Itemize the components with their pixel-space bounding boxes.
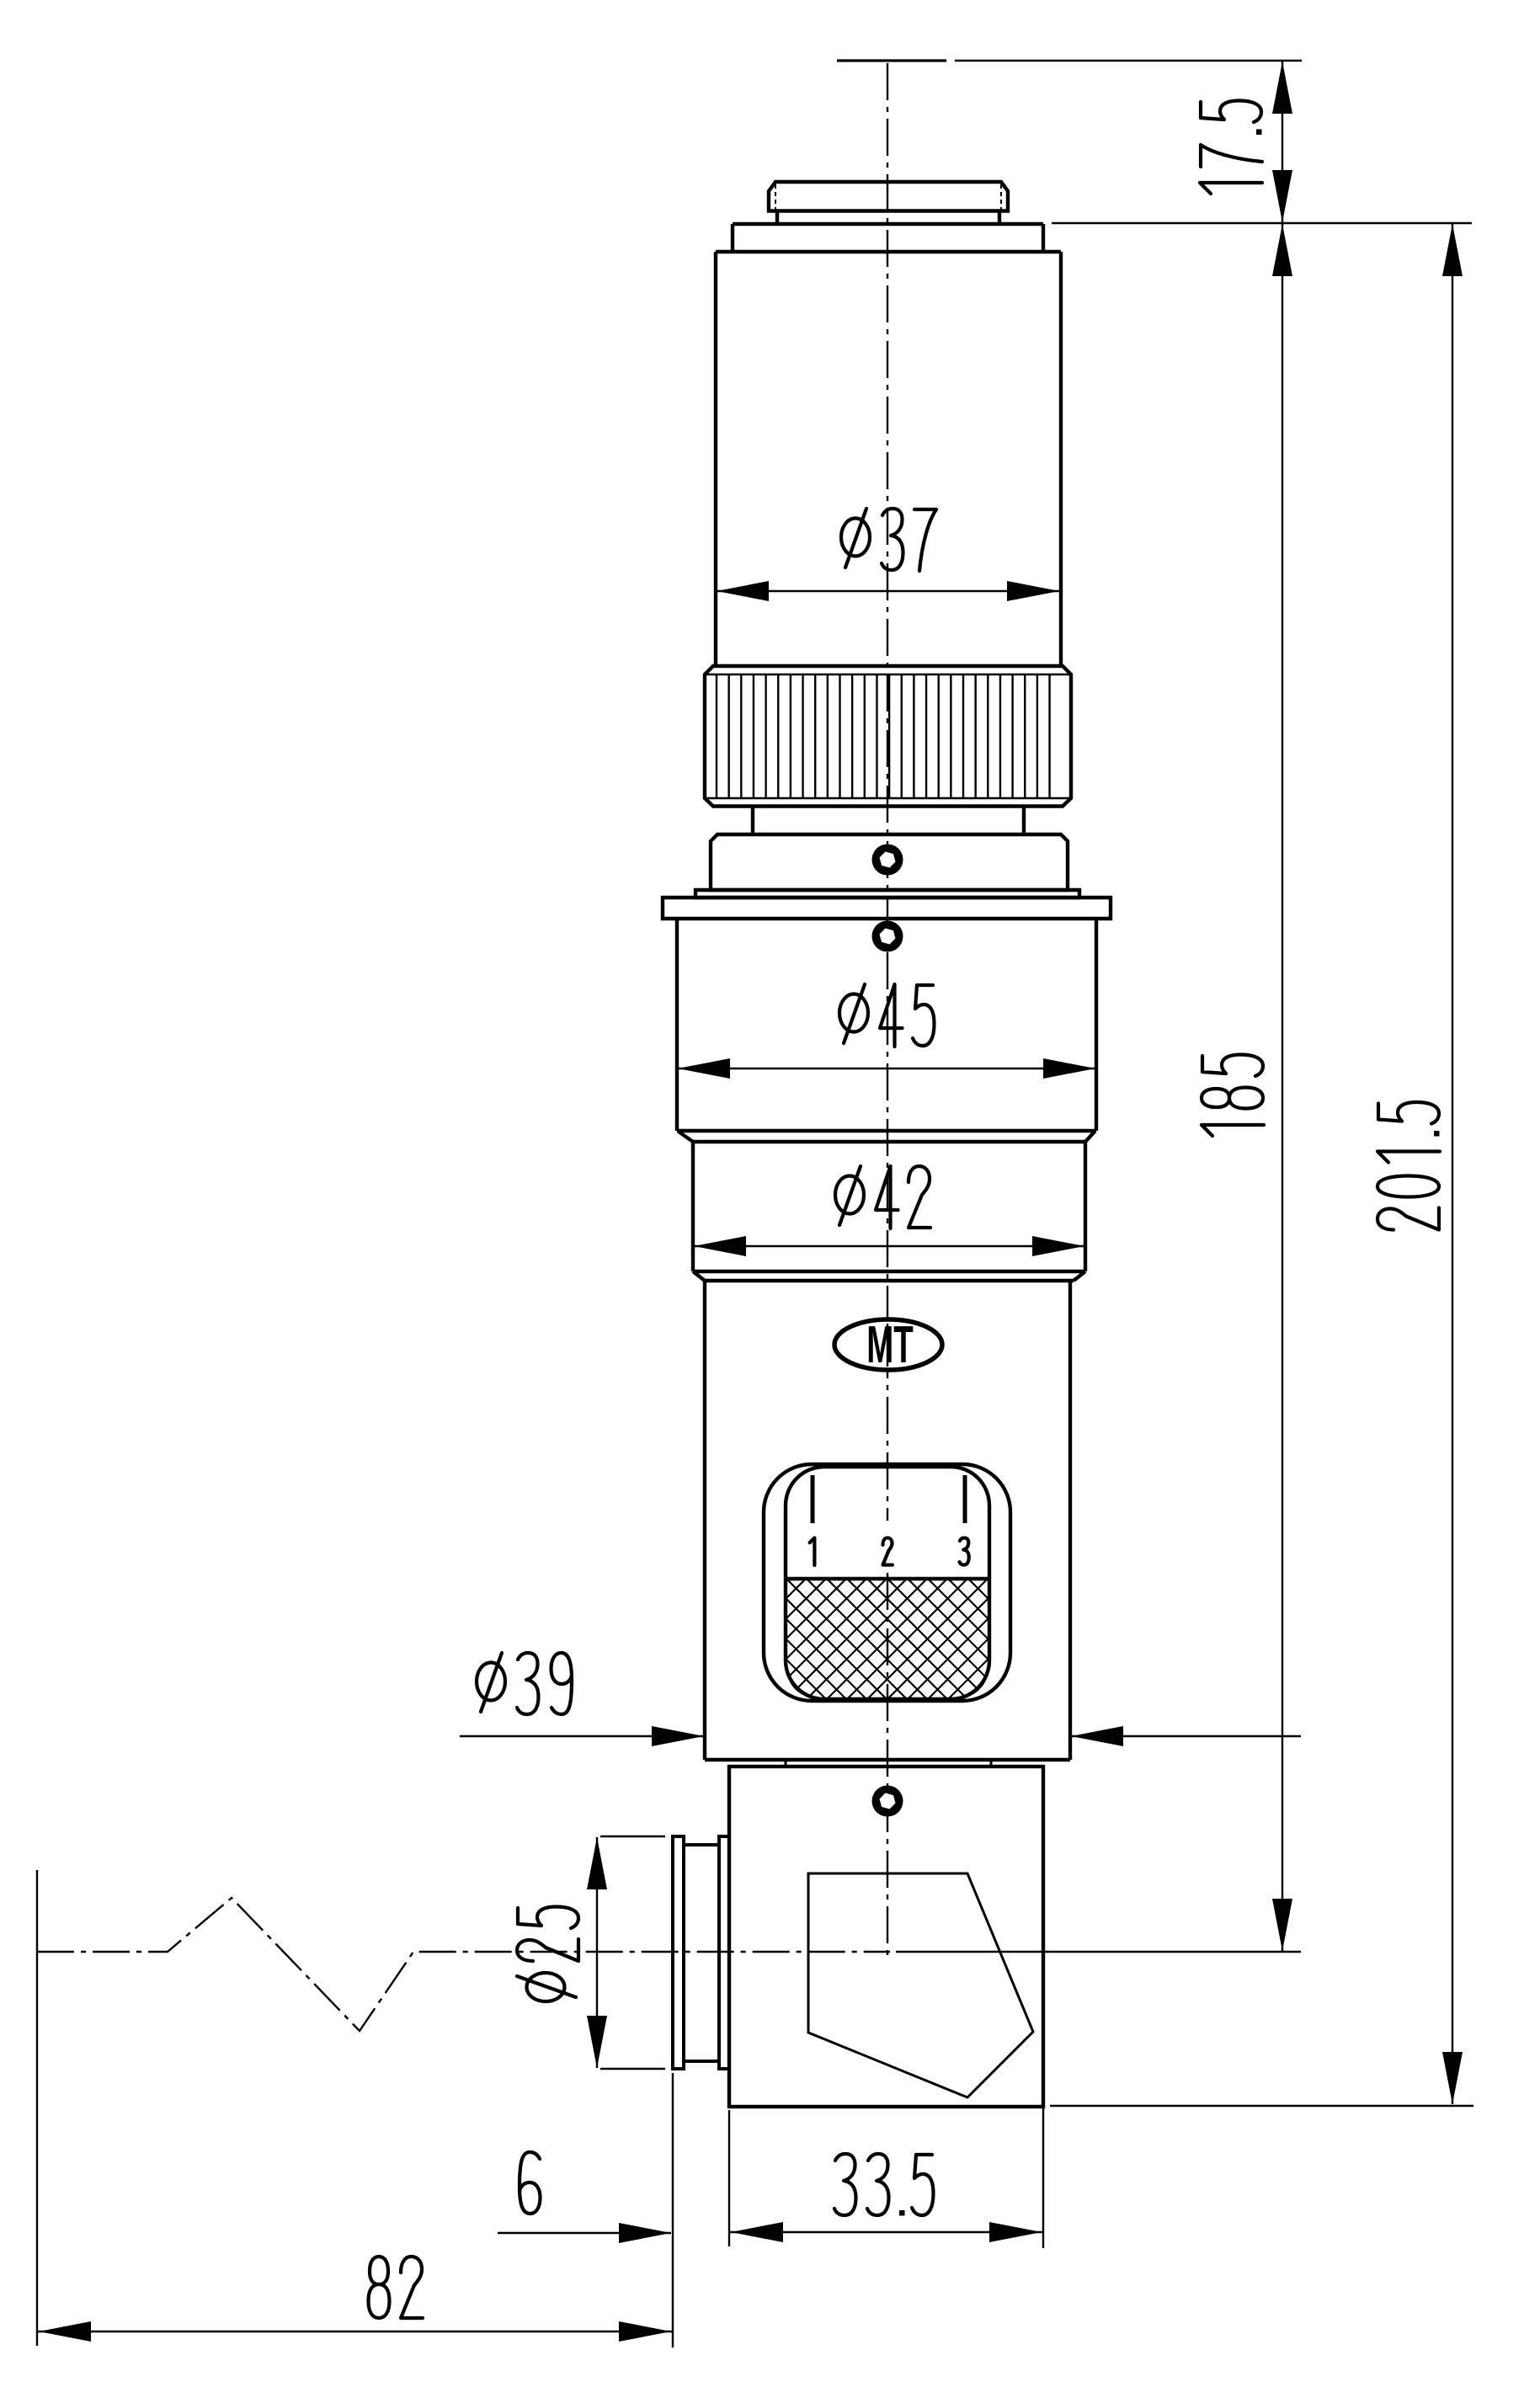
svg-text:MT: MT: [866, 1315, 914, 1374]
